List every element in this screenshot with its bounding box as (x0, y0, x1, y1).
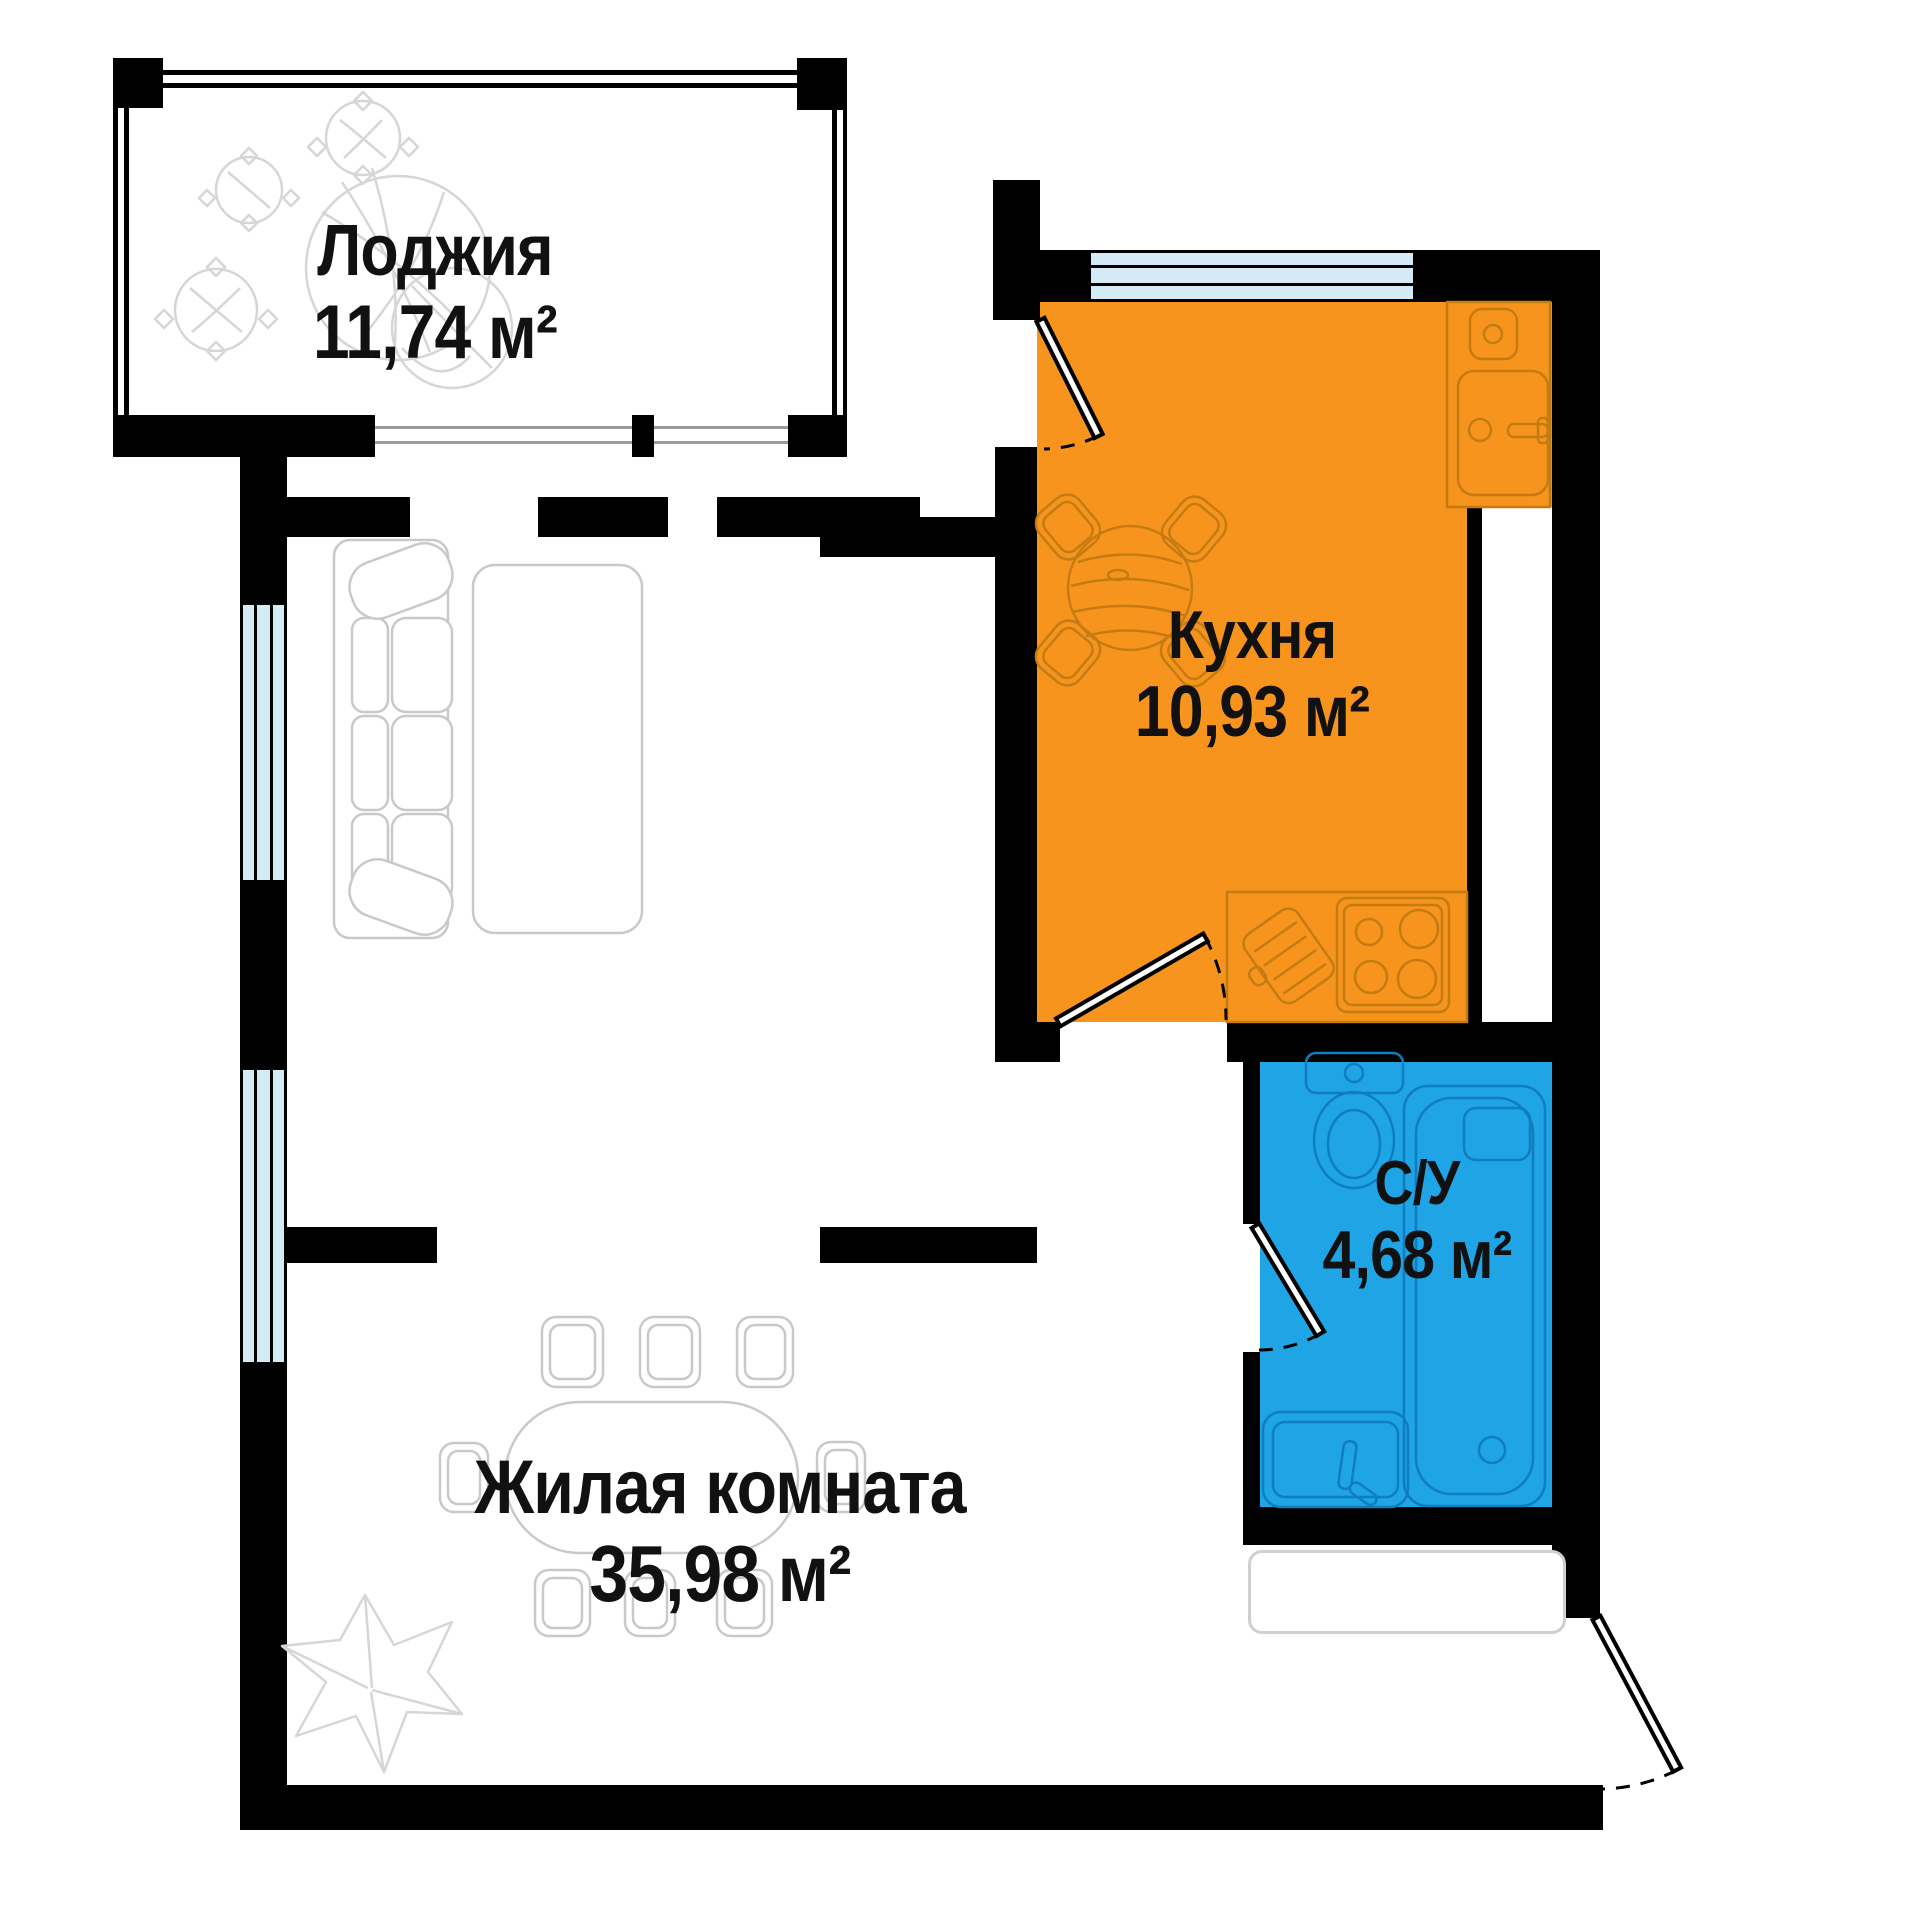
door-icon (1036, 318, 1102, 449)
room-area: 11,74 м² (226, 291, 644, 375)
room-name: Лоджия (226, 212, 644, 291)
room-area: 4,68 м² (1282, 1218, 1552, 1293)
plant-icon (308, 92, 418, 184)
room-name: С/У (1282, 1150, 1552, 1218)
stove-icon (1337, 898, 1449, 1012)
room-label-loggia: Лоджия 11,74 м² (226, 212, 644, 375)
floor-plan-canvas: Лоджия 11,74 м² Кухня 10,93 м² С/У 4,68 … (0, 0, 1920, 1920)
room-name: Жилая комната (459, 1446, 981, 1530)
door-icon (1056, 934, 1226, 1027)
door-icon (1592, 1616, 1681, 1789)
sink-icon (1447, 302, 1550, 507)
sofa-icon (334, 536, 460, 942)
room-area: 10,93 м² (1078, 673, 1426, 752)
room-area: 35,98 м² (459, 1530, 981, 1618)
rug-icon (473, 565, 642, 933)
flower-icon (282, 1595, 462, 1772)
room-label-kitchen: Кухня 10,93 м² (1078, 598, 1426, 752)
room-label-bathroom: С/У 4,68 м² (1282, 1150, 1552, 1293)
room-name: Кухня (1078, 598, 1426, 673)
room-label-living: Жилая комната 35,98 м² (459, 1446, 981, 1618)
washbasin-icon (1263, 1412, 1408, 1507)
